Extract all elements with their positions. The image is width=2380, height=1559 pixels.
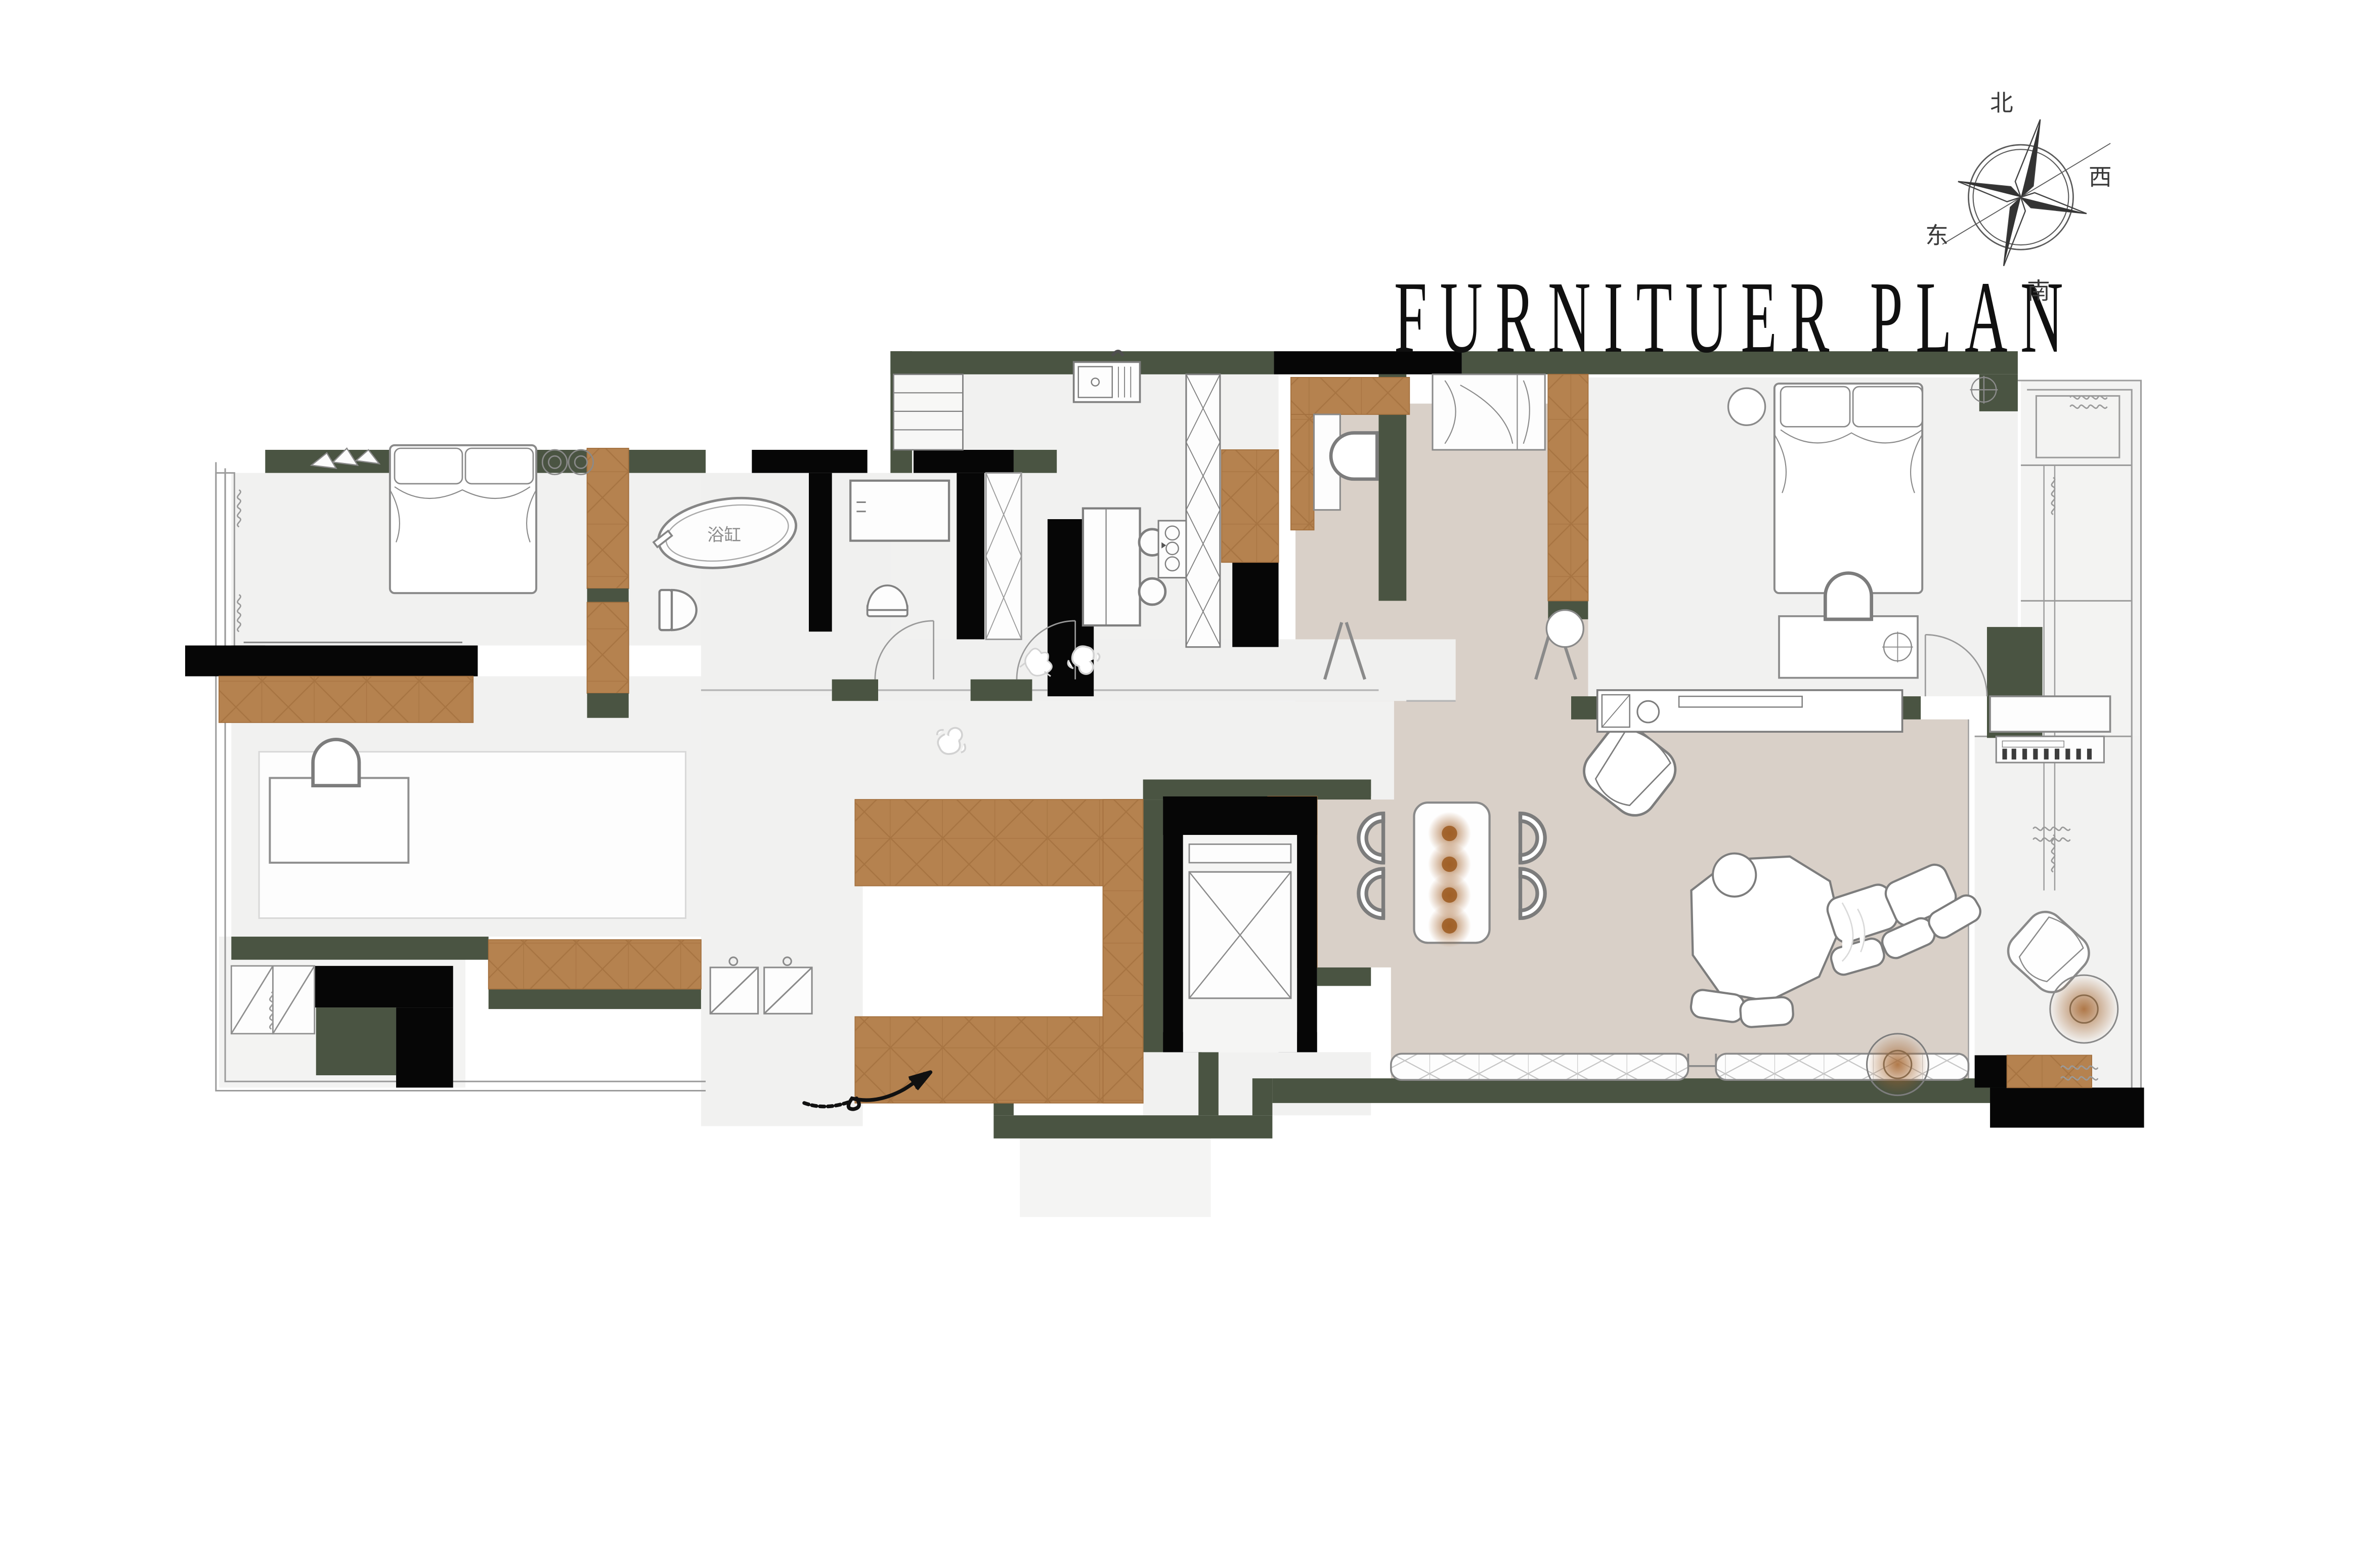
round-nightstand	[1728, 388, 1765, 425]
compass-east-label: 东	[1925, 222, 1949, 249]
closet-u-right	[1103, 799, 1143, 1103]
closet-u-bottom	[855, 1017, 1143, 1103]
bed-right	[1775, 384, 1922, 593]
wardrobe-bedroom-left-lower	[587, 602, 629, 693]
compass-west-label: 西	[2089, 163, 2112, 190]
island-stool	[1139, 578, 1165, 605]
guest-bedding	[1433, 374, 1545, 450]
pantry-cabinet-left	[1291, 414, 1314, 530]
title-text: FURNITUER PLAN	[1394, 260, 2076, 374]
piano	[1990, 696, 2110, 763]
balcony-mat	[2007, 1055, 2092, 1087]
vestibule-floor	[1020, 1139, 1211, 1217]
wardrobe-corridor-south	[489, 940, 701, 989]
bathtub-label: 浴缸	[707, 525, 741, 545]
study-desk	[270, 778, 408, 862]
tv-console	[1597, 690, 1902, 732]
study-chair	[313, 739, 359, 785]
pantry-chair	[1331, 433, 1377, 479]
compass-south-label: 南	[2027, 278, 2050, 305]
kitchen-niche-shelves	[893, 374, 963, 450]
toilet-main	[660, 590, 697, 630]
corridor-floor-horizontal	[863, 639, 1456, 701]
corridor-floor-vertical	[701, 696, 863, 1126]
side-stool	[1546, 610, 1583, 647]
dresser-stool	[1825, 573, 1871, 619]
kitchen-tall-cabinet	[1186, 374, 1220, 647]
floor-plan-canvas: 浴缸	[0, 0, 2380, 1559]
wardrobe-bedroom-left	[587, 448, 629, 588]
console-cabinet-bedroom-left	[219, 677, 473, 723]
elevator	[1163, 796, 1317, 1052]
page-title: FURNITUER PLAN	[1394, 260, 2076, 374]
pantry-cabinet-top	[1291, 377, 1409, 414]
compass-north-label: 北	[1990, 90, 2013, 116]
floor-pot-glow	[1867, 1034, 1929, 1095]
kitchen-cooktop	[1158, 521, 1189, 578]
wardrobe-guest-column	[1548, 374, 1588, 601]
furniture-plan-page: 浴缸	[0, 0, 2380, 1559]
closet-u-top	[855, 799, 1143, 886]
pouf-glow	[2050, 975, 2118, 1043]
bed-left	[390, 445, 536, 593]
kitchen-side-cabinet	[1222, 450, 1279, 562]
